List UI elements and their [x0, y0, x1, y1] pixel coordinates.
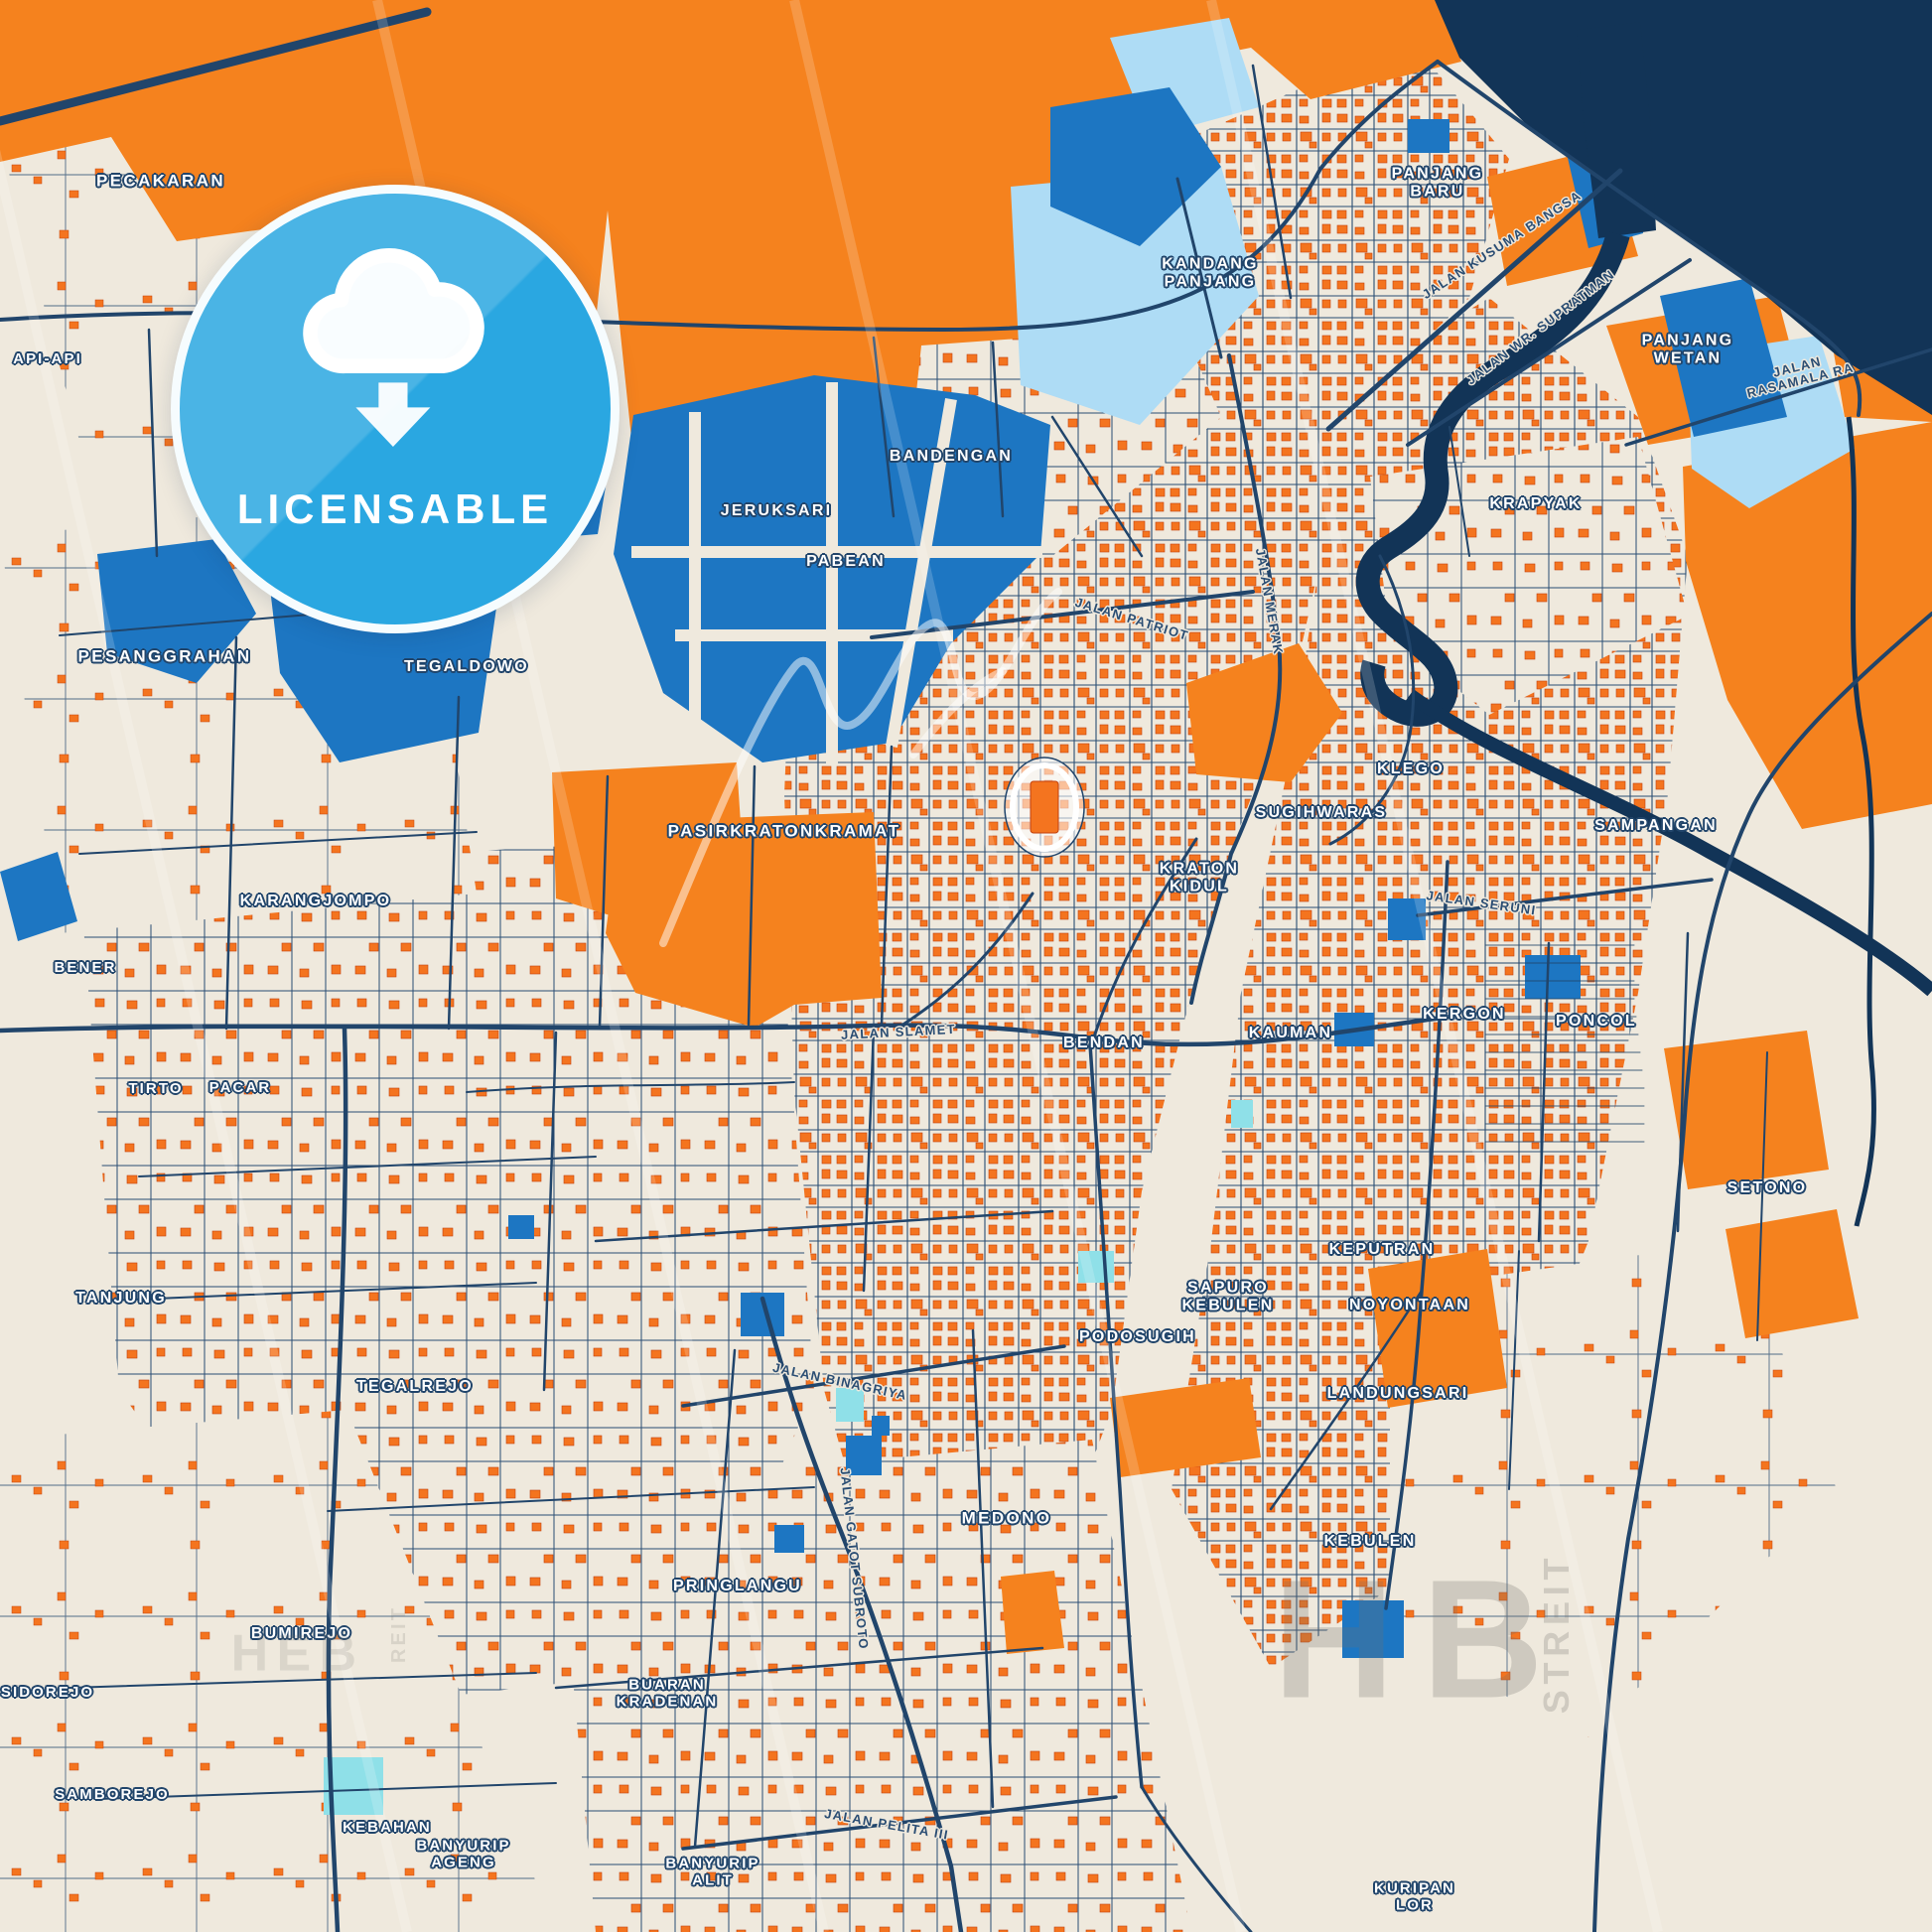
stadium: [1005, 758, 1084, 857]
badge-label: LICENSABLE: [180, 485, 611, 533]
licensable-badge: LICENSABLE: [171, 185, 620, 633]
map-poster: PECAKARANAPI-APIPESANGGRAHANTEGALDOWOKAR…: [0, 0, 1932, 1932]
cloud-download-icon: [271, 233, 519, 462]
